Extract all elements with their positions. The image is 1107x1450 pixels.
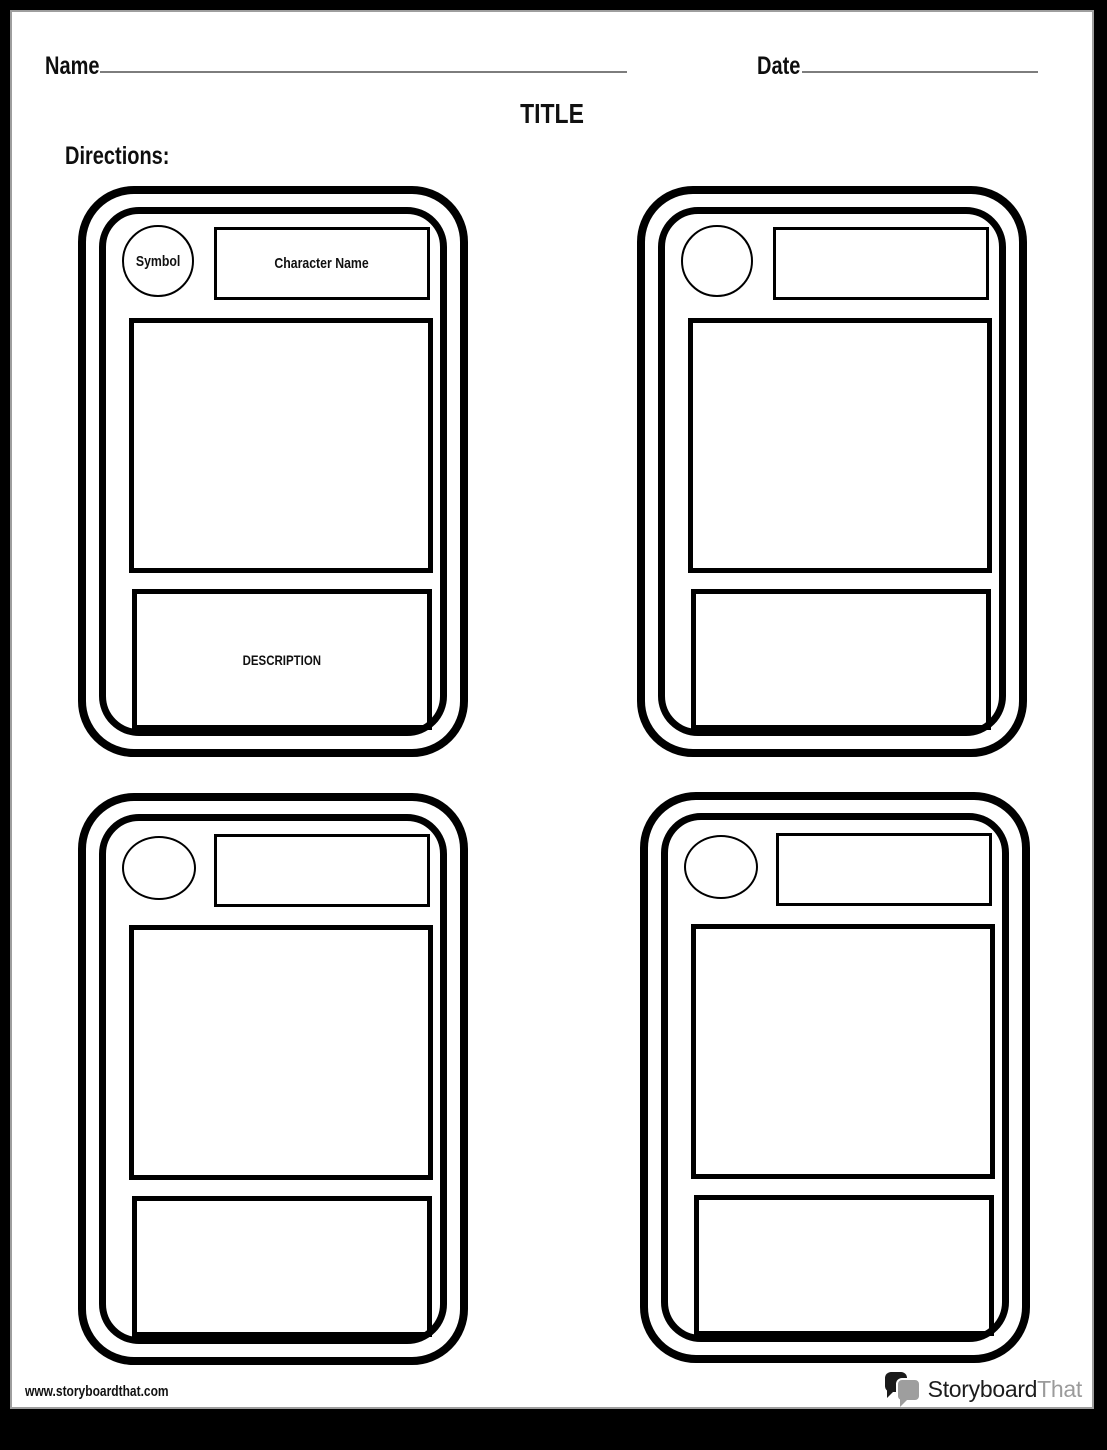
card-inner-frame: Symbol Character Name DESCRIPTION <box>99 207 447 736</box>
card-image-area[interactable] <box>691 924 995 1179</box>
directions-label: Directions: <box>65 142 169 171</box>
date-fill-line[interactable] <box>802 71 1038 73</box>
page-title: TITLE <box>109 98 995 130</box>
symbol-circle[interactable] <box>681 225 753 297</box>
storyboardthat-logo: StoryboardThat <box>885 1371 1082 1407</box>
symbol-label: Symbol <box>136 253 180 270</box>
speech-bubbles-icon <box>885 1372 921 1406</box>
date-label: Date <box>757 52 800 81</box>
card-image-area[interactable] <box>129 925 433 1180</box>
description-label: DESCRIPTION <box>243 652 321 668</box>
symbol-circle[interactable] <box>684 835 758 899</box>
logo-text-storyboard: Storyboard <box>928 1376 1038 1402</box>
description-box[interactable] <box>691 589 991 730</box>
character-card-4 <box>640 792 1030 1363</box>
description-box[interactable] <box>694 1195 994 1336</box>
symbol-circle[interactable] <box>122 836 196 900</box>
logo-wordmark: StoryboardThat <box>928 1376 1082 1403</box>
symbol-circle[interactable]: Symbol <box>122 225 194 297</box>
character-name-box[interactable] <box>776 833 992 906</box>
footer-url: www.storyboardthat.com <box>25 1383 169 1400</box>
character-name-box[interactable] <box>773 227 989 300</box>
name-fill-line[interactable] <box>100 71 627 73</box>
character-card-2 <box>637 186 1027 757</box>
character-card-1: Symbol Character Name DESCRIPTION <box>78 186 468 757</box>
description-box[interactable]: DESCRIPTION <box>132 589 432 730</box>
speech-bubble-gray <box>896 1378 921 1402</box>
worksheet-page: Name Date TITLE Directions: Symbol Chara… <box>10 10 1094 1409</box>
name-label: Name <box>45 52 99 81</box>
description-box[interactable] <box>132 1196 432 1337</box>
card-image-area[interactable] <box>688 318 992 573</box>
card-inner-frame <box>661 813 1009 1342</box>
card-inner-frame <box>658 207 1006 736</box>
character-name-box[interactable]: Character Name <box>214 227 430 300</box>
character-name-box[interactable] <box>214 834 430 907</box>
character-name-label: Character Name <box>275 255 369 272</box>
card-inner-frame <box>99 814 447 1344</box>
character-card-3 <box>78 793 468 1365</box>
card-image-area[interactable] <box>129 318 433 573</box>
logo-text-that: That <box>1037 1376 1082 1402</box>
